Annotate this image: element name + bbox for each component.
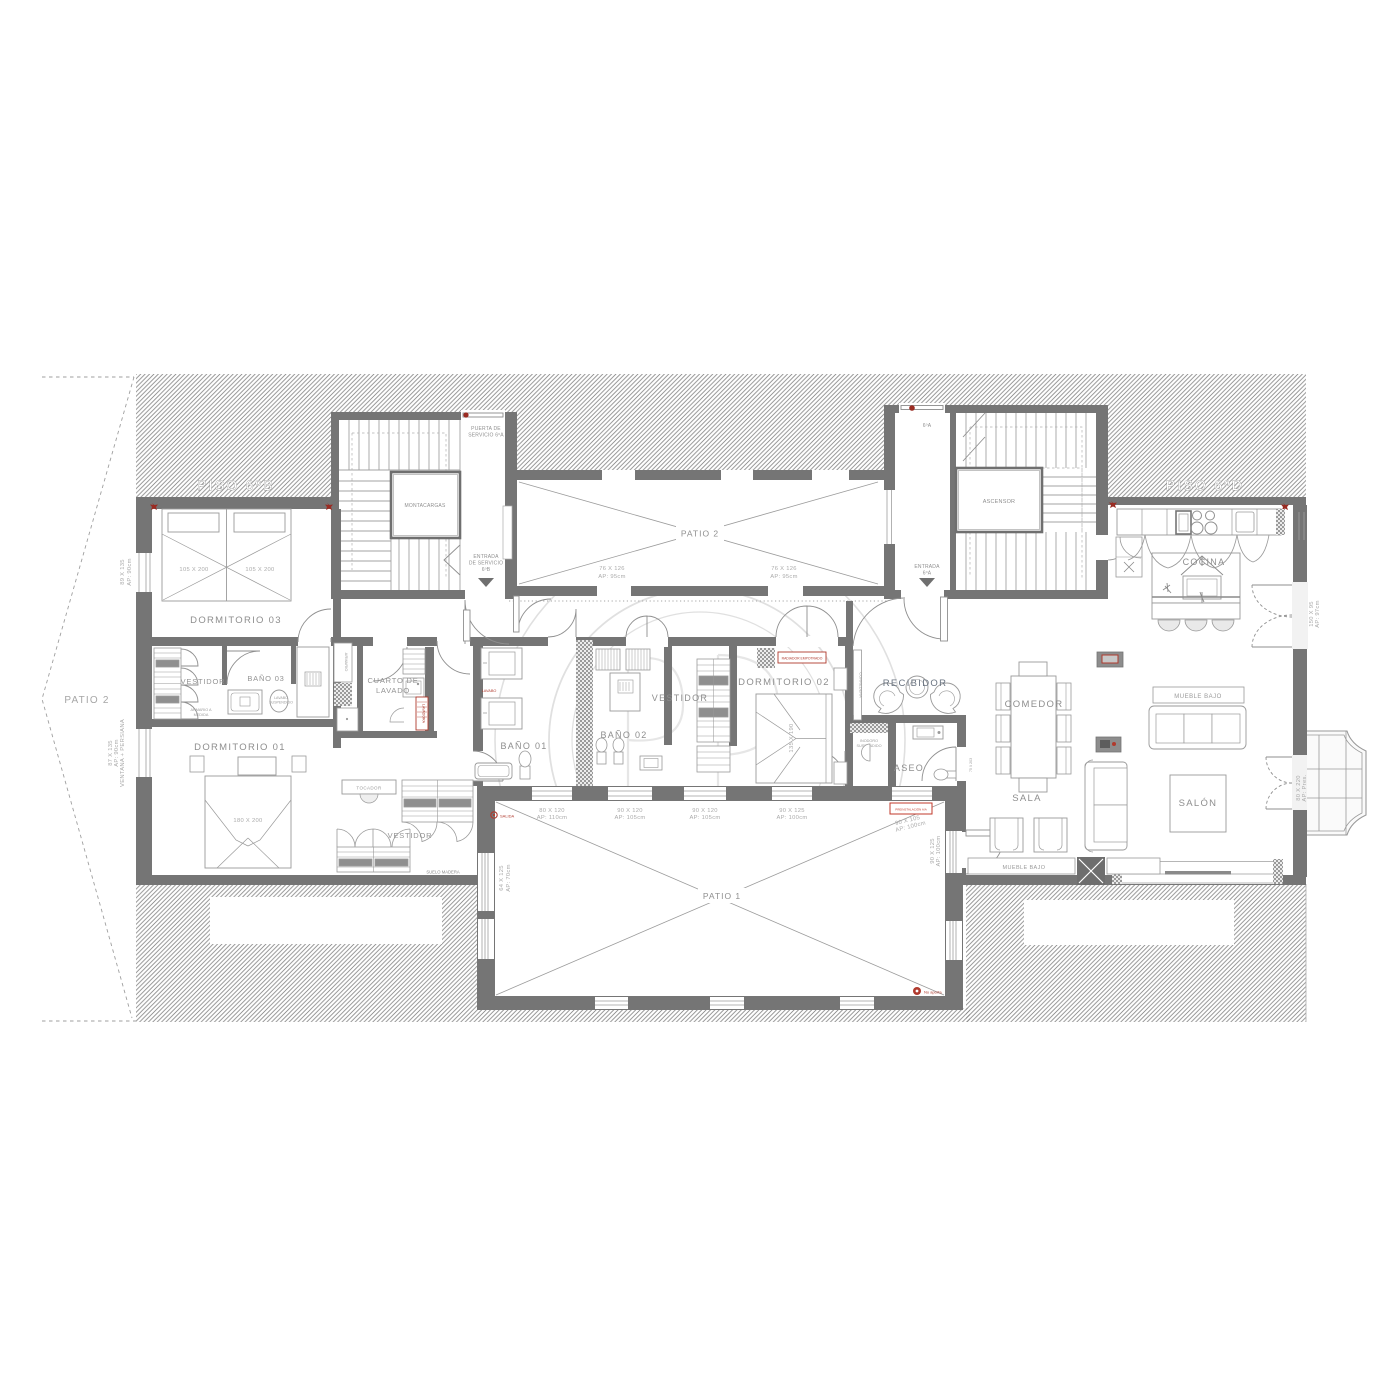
svg-text:VESTIDOR: VESTIDOR	[652, 693, 708, 703]
svg-text:ASEO: ASEO	[894, 763, 924, 773]
svg-text:76 X 126: 76 X 126	[599, 566, 625, 572]
svg-text:ARMARIO: ARMARIO	[344, 653, 349, 672]
svg-text:VESTIDOR: VESTIDOR	[388, 831, 433, 840]
svg-text:76 X 126: 76 X 126	[771, 566, 797, 572]
svg-text:MUEBLE BAJO: MUEBLE BAJO	[1003, 865, 1046, 871]
svg-text:AP: 95cm: AP: 95cm	[770, 574, 798, 580]
svg-text:6ºB: 6ºB	[482, 567, 491, 573]
svg-text:VENTANA + PERSIANA: VENTANA + PERSIANA	[120, 719, 126, 787]
svg-text:SUSPENDIDO: SUSPENDIDO	[269, 701, 293, 705]
svg-text:MONTACARGAS: MONTACARGAS	[405, 503, 446, 509]
svg-text:AP: 95cm: AP: 95cm	[598, 574, 626, 580]
svg-text:PUERTA DE: PUERTA DE	[471, 426, 501, 432]
svg-text:AP: 110cm: AP: 110cm	[537, 815, 568, 821]
svg-text:75 X 203: 75 X 203	[969, 758, 973, 772]
svg-text:SALA: SALA	[1012, 793, 1042, 804]
svg-text:ASCENSOR: ASCENSOR	[983, 499, 1015, 505]
svg-text:180 X 200: 180 X 200	[233, 818, 262, 824]
svg-text:DORMITORIO 02: DORMITORIO 02	[738, 677, 830, 688]
svg-text:INODORO: INODORO	[860, 739, 878, 743]
svg-text:6ºA: 6ºA	[923, 571, 932, 577]
svg-text:No aporta: No aporta	[924, 990, 942, 995]
svg-text:PATIO 1: PATIO 1	[703, 891, 741, 901]
svg-text:ENTRADA: ENTRADA	[914, 564, 940, 570]
svg-text:MEDIDA: MEDIDA	[194, 713, 209, 717]
svg-text:BAÑO 03: BAÑO 03	[247, 674, 284, 683]
svg-text:AP: 90cm: AP: 90cm	[127, 558, 133, 586]
svg-text:80 X 120: 80 X 120	[539, 808, 565, 814]
svg-text:BAÑO 02: BAÑO 02	[600, 730, 647, 740]
svg-text:135 X 190: 135 X 190	[789, 723, 795, 752]
svg-text:AP: Pres.: AP: Pres.	[1302, 774, 1308, 801]
svg-text:PISO 6ºB: PISO 6ºB	[197, 478, 274, 493]
svg-text:LAVADORA: LAVADORA	[422, 704, 426, 724]
svg-text:PREINSTALACIÓN A/A: PREINSTALACIÓN A/A	[895, 807, 926, 812]
svg-text:90 X 125: 90 X 125	[779, 808, 805, 814]
svg-text:COCINA: COCINA	[1183, 557, 1226, 567]
svg-text:ARMARIO A: ARMARIO A	[190, 708, 212, 712]
svg-text:90 X 120: 90 X 120	[692, 808, 718, 814]
svg-text:DE SERVICIO: DE SERVICIO	[469, 561, 503, 567]
svg-text:MUEBLE BAJO: MUEBLE BAJO	[1174, 694, 1222, 700]
svg-text:SALÓN: SALÓN	[1179, 798, 1218, 809]
svg-text:SERVICIO 6ºA: SERVICIO 6ºA	[468, 433, 504, 439]
svg-text:AP: 70cm: AP: 70cm	[506, 864, 512, 892]
svg-text:89 X 135: 89 X 135	[120, 559, 126, 585]
svg-text:SUELO MADERA: SUELO MADERA	[426, 870, 459, 875]
svg-text:PATIO 2: PATIO 2	[64, 695, 109, 706]
svg-text:PISO 6ºD: PISO 6ºD	[1166, 478, 1244, 493]
svg-text:SALIDA: SALIDA	[500, 814, 515, 819]
svg-text:AP: 105cm: AP: 105cm	[689, 815, 720, 821]
svg-text:CORREDERA: CORREDERA	[859, 672, 864, 698]
svg-text:AP: 97cm: AP: 97cm	[1315, 600, 1321, 628]
svg-text:90 X 120: 90 X 120	[617, 808, 643, 814]
svg-text:TOCADOR: TOCADOR	[356, 786, 382, 791]
svg-text:AP: 100cm: AP: 100cm	[936, 835, 942, 866]
svg-text:DORMITORIO 03: DORMITORIO 03	[190, 615, 282, 626]
svg-text:AP: 100cm: AP: 100cm	[776, 815, 807, 821]
svg-text:LAVABO: LAVABO	[482, 689, 497, 693]
svg-text:AP: 105cm: AP: 105cm	[614, 815, 645, 821]
svg-text:105 X 200: 105 X 200	[245, 567, 274, 573]
svg-text:COMEDOR: COMEDOR	[1005, 699, 1064, 710]
svg-text:BAÑO 01: BAÑO 01	[500, 741, 547, 751]
svg-text:105 X 200: 105 X 200	[179, 567, 208, 573]
svg-text:CUARTO DE: CUARTO DE	[367, 676, 418, 685]
svg-text:6ºA: 6ºA	[923, 423, 932, 429]
svg-text:RECIBIDOR: RECIBIDOR	[883, 678, 947, 689]
svg-text:PATIO 2: PATIO 2	[681, 529, 719, 539]
svg-text:RADIADOR EMPOTRADO: RADIADOR EMPOTRADO	[782, 657, 823, 661]
svg-text:VESTIDOR: VESTIDOR	[181, 677, 226, 686]
svg-text:64 X 125: 64 X 125	[499, 865, 505, 891]
svg-text:DORMITORIO 01: DORMITORIO 01	[194, 742, 286, 753]
svg-text:LAVADO: LAVADO	[376, 686, 410, 695]
svg-text:ENTRADA: ENTRADA	[473, 554, 499, 560]
svg-text:LAVABO: LAVABO	[274, 696, 288, 700]
